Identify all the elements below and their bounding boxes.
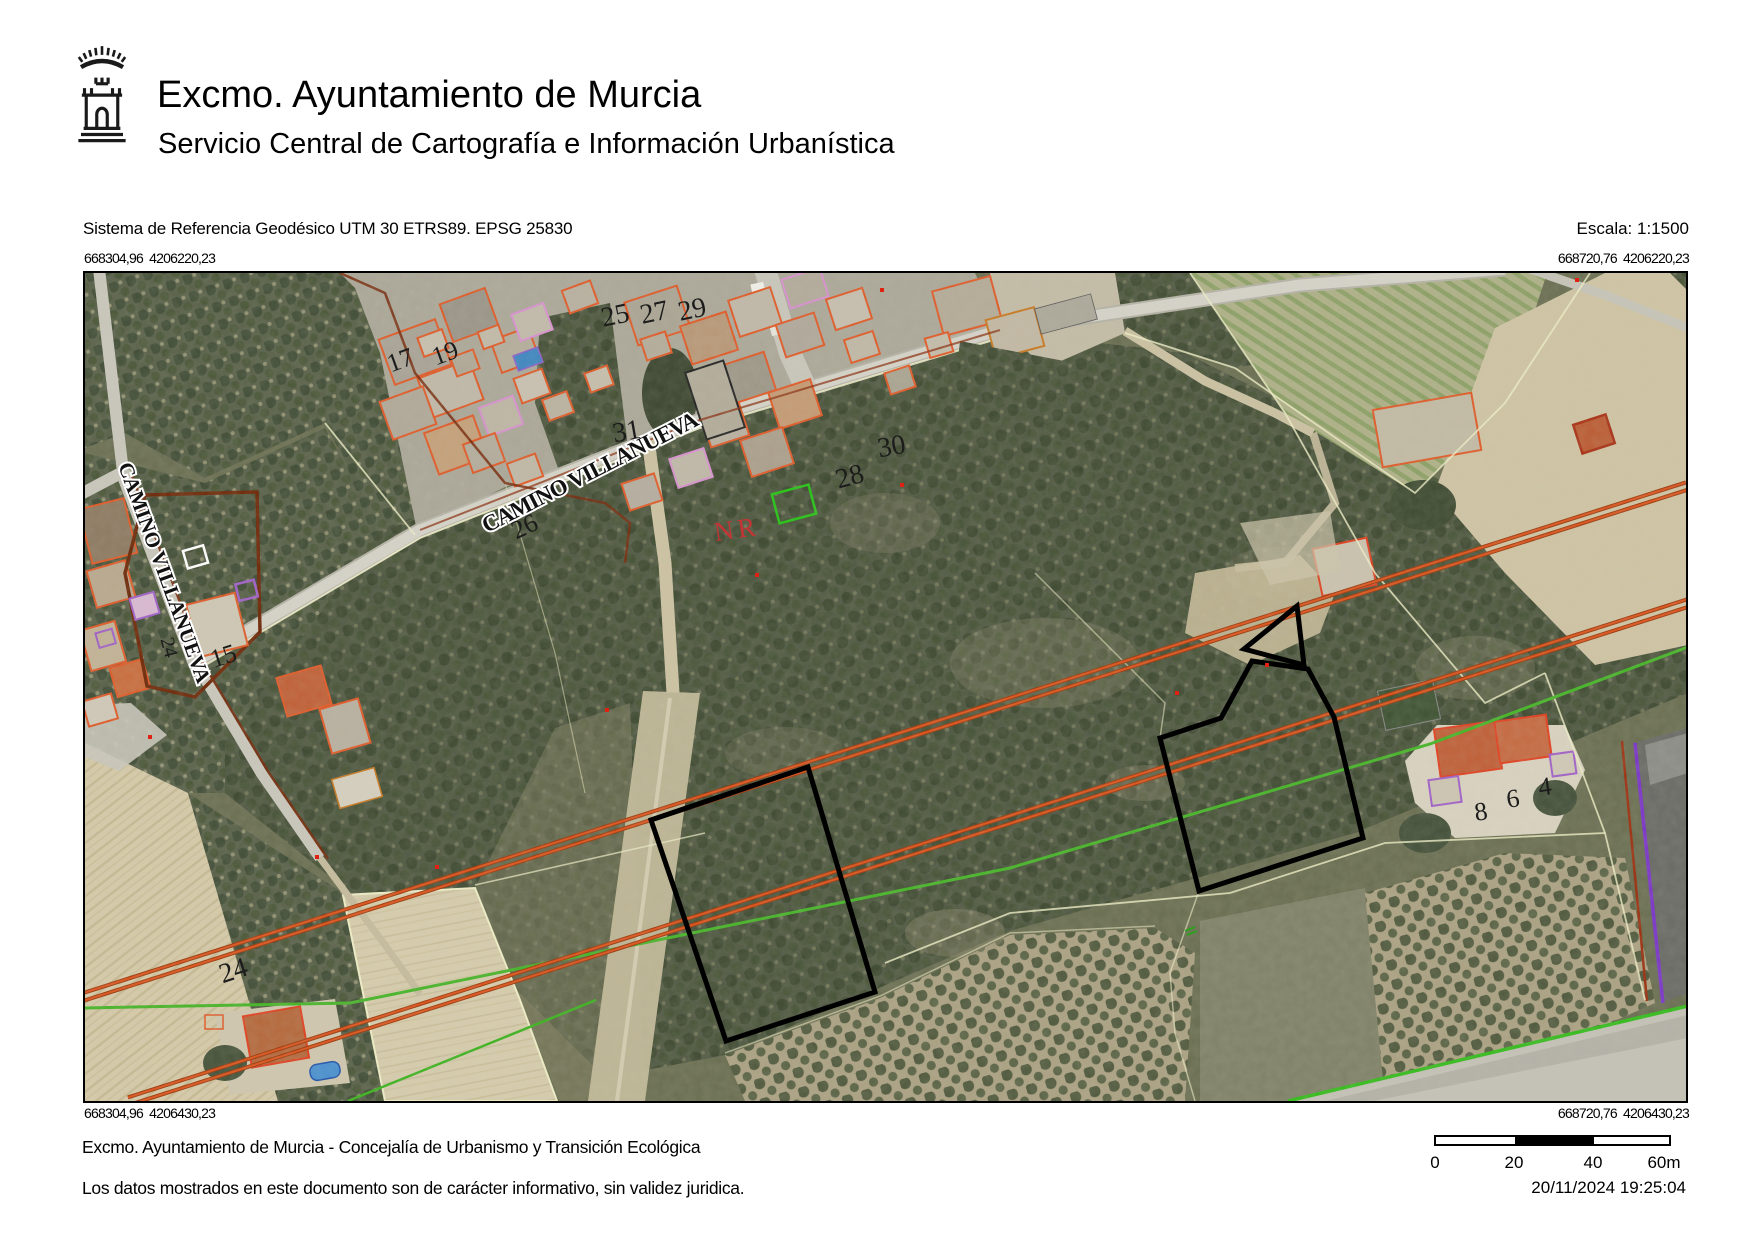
svg-text:31: 31 [610, 414, 643, 449]
svg-text:NR: NR [712, 511, 761, 547]
svg-text:30: 30 [875, 429, 908, 464]
